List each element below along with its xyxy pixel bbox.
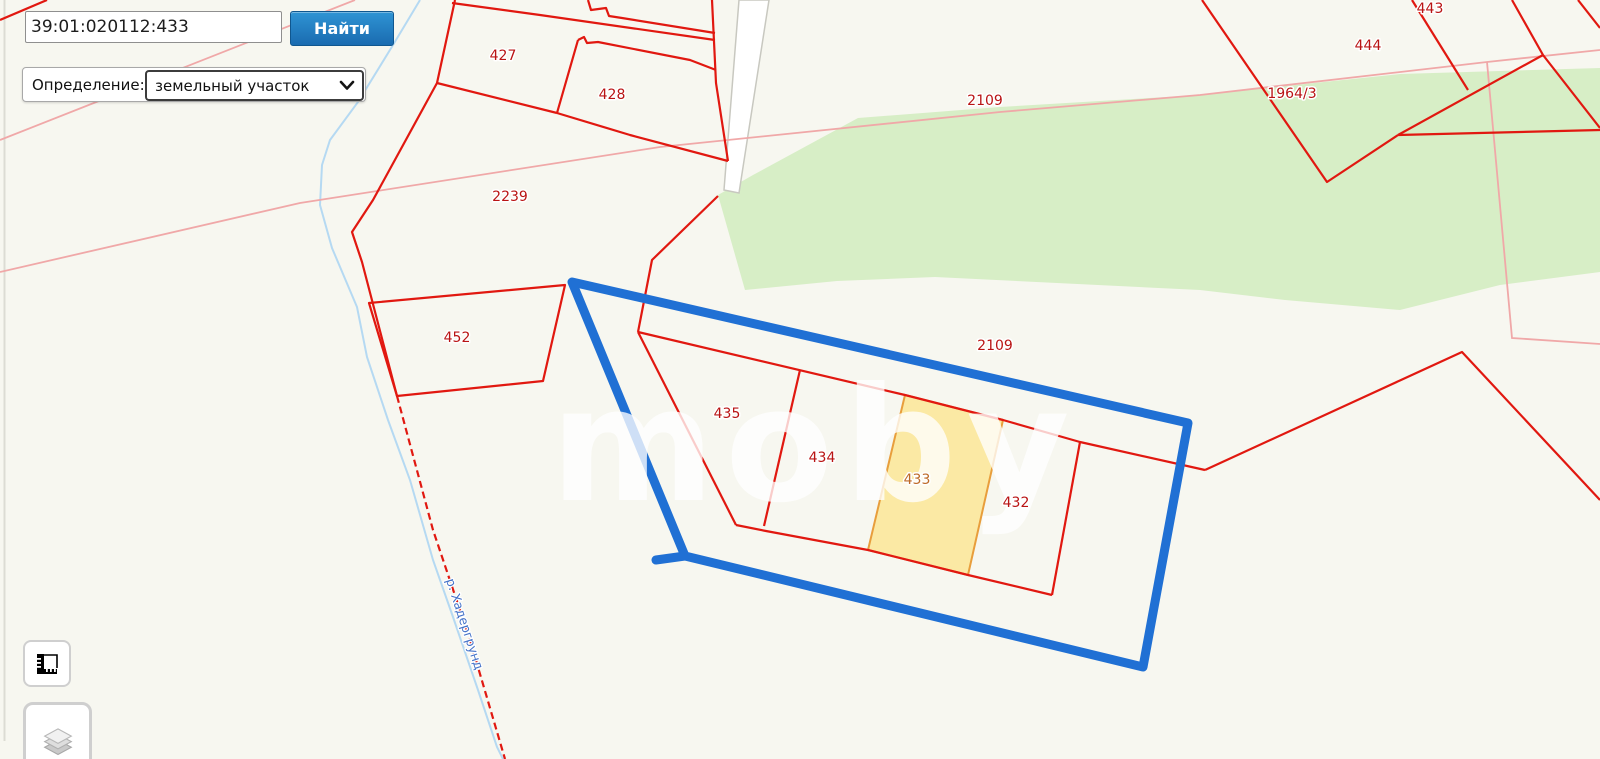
chevron-down-icon [339, 80, 355, 91]
parcel-label-443: 443 [1417, 1, 1444, 17]
parcel-label-427: 427 [490, 48, 517, 64]
cadastral-number-input[interactable] [25, 11, 282, 43]
definition-selected-value: земельный участок [155, 77, 310, 95]
road [724, 0, 769, 193]
parcel-label-452: 452 [444, 330, 471, 346]
parcel-label-432: 432 [1003, 495, 1030, 511]
definition-panel: Определение: земельный участок [22, 67, 366, 102]
parcel-label-428: 428 [599, 87, 626, 103]
parcel-label-2239: 2239 [492, 189, 528, 205]
river-label: р. Хадергрунд [443, 576, 487, 671]
parcel-label-444: 444 [1355, 38, 1382, 54]
find-button[interactable]: Найти [290, 11, 394, 46]
definition-select[interactable]: земельный участок [145, 70, 364, 101]
layers-icon [38, 720, 78, 759]
parcel-label-434: 434 [809, 450, 836, 466]
map-canvas[interactable]: moby 427 428 2239 452 435 434 433 432 21… [0, 0, 1600, 759]
parcel-label-435: 435 [714, 406, 741, 422]
parcel-label-2109-north: 2109 [967, 93, 1003, 109]
vegetation-area [718, 68, 1600, 310]
measure-tool-button[interactable] [23, 640, 71, 687]
parcel-label-433: 433 [904, 472, 931, 488]
definition-label: Определение: [32, 76, 145, 94]
parcel-label-1964-3: 1964/3 [1267, 86, 1316, 102]
layers-tool-button[interactable] [23, 702, 92, 759]
watermark: moby [550, 354, 1079, 538]
ruler-icon [34, 651, 60, 677]
parcel-label-2109-south: 2109 [977, 338, 1013, 354]
cadastral-map-app: moby 427 428 2239 452 435 434 433 432 21… [0, 0, 1600, 759]
